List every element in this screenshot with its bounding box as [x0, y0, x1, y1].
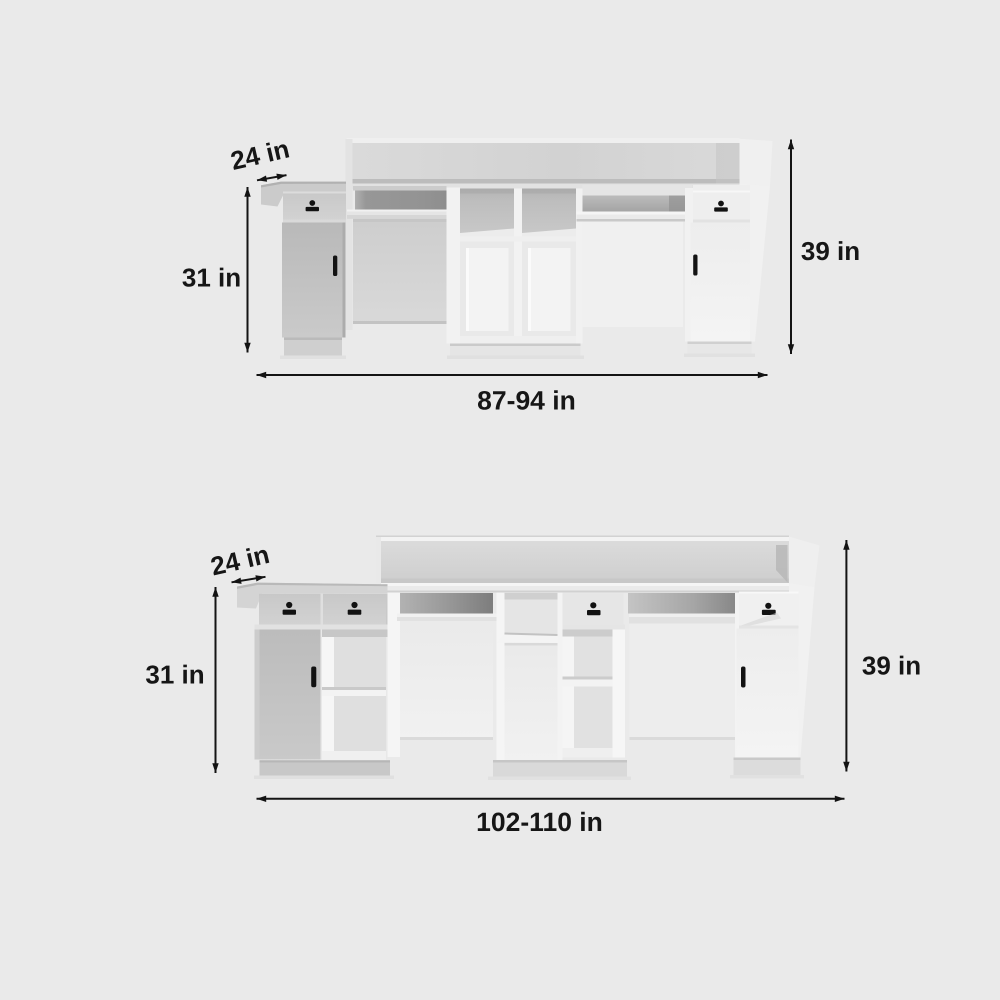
- svg-text:31 in: 31 in: [145, 660, 204, 690]
- svg-text:39 in: 39 in: [862, 651, 921, 681]
- svg-text:87-94 in: 87-94 in: [477, 386, 576, 416]
- svg-text:102-110 in: 102-110 in: [476, 807, 603, 837]
- svg-text:39 in: 39 in: [801, 236, 860, 266]
- svg-text:31 in: 31 in: [182, 263, 241, 293]
